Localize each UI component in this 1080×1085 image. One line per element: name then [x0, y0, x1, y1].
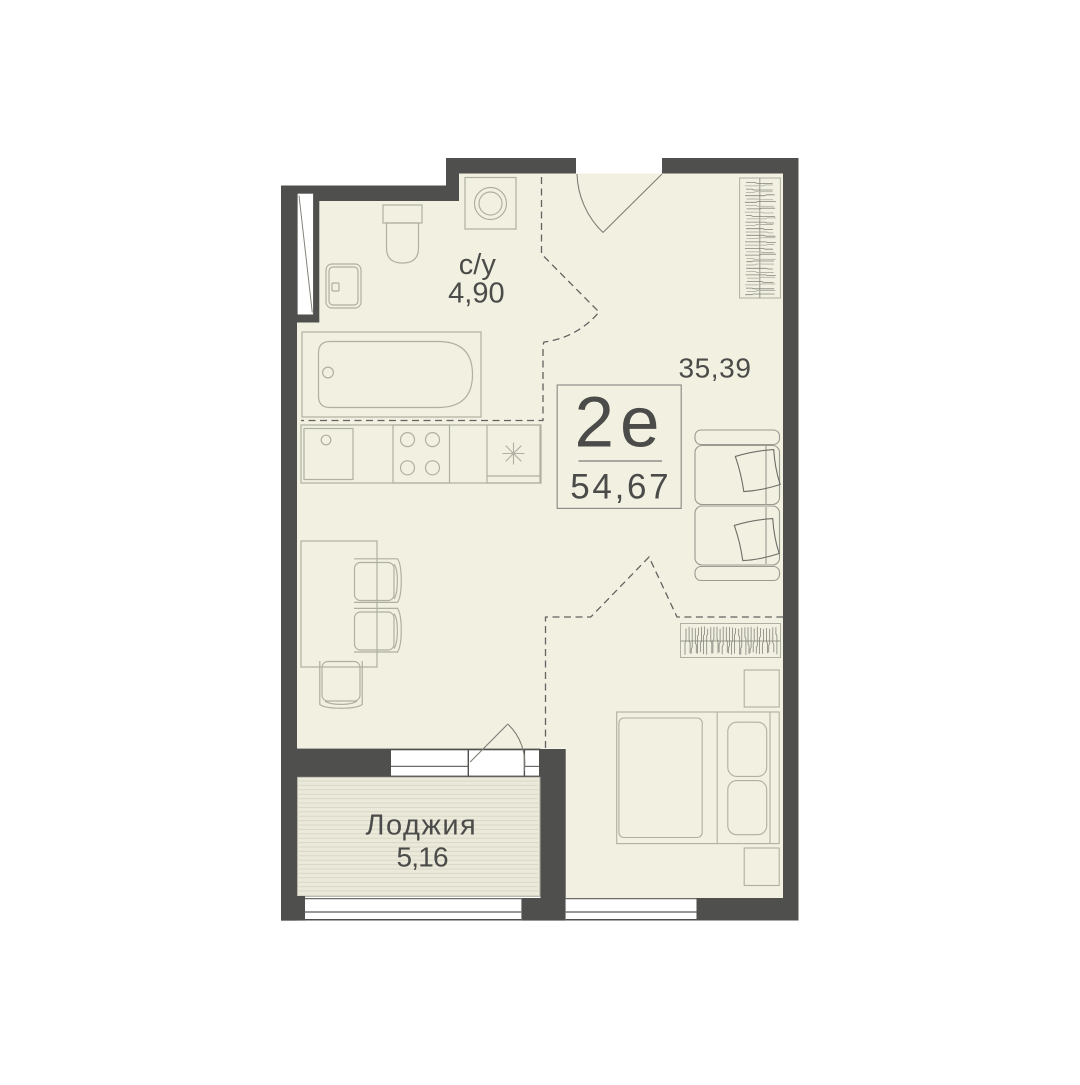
svg-text:с/у: с/у	[459, 249, 497, 281]
svg-text:4,90: 4,90	[448, 277, 504, 309]
svg-text:2е: 2е	[575, 384, 666, 463]
svg-text:35,39: 35,39	[678, 353, 751, 384]
svg-text:54,67: 54,67	[570, 467, 671, 506]
svg-text:5,16: 5,16	[396, 841, 448, 872]
svg-text:Лоджия: Лоджия	[366, 810, 478, 842]
